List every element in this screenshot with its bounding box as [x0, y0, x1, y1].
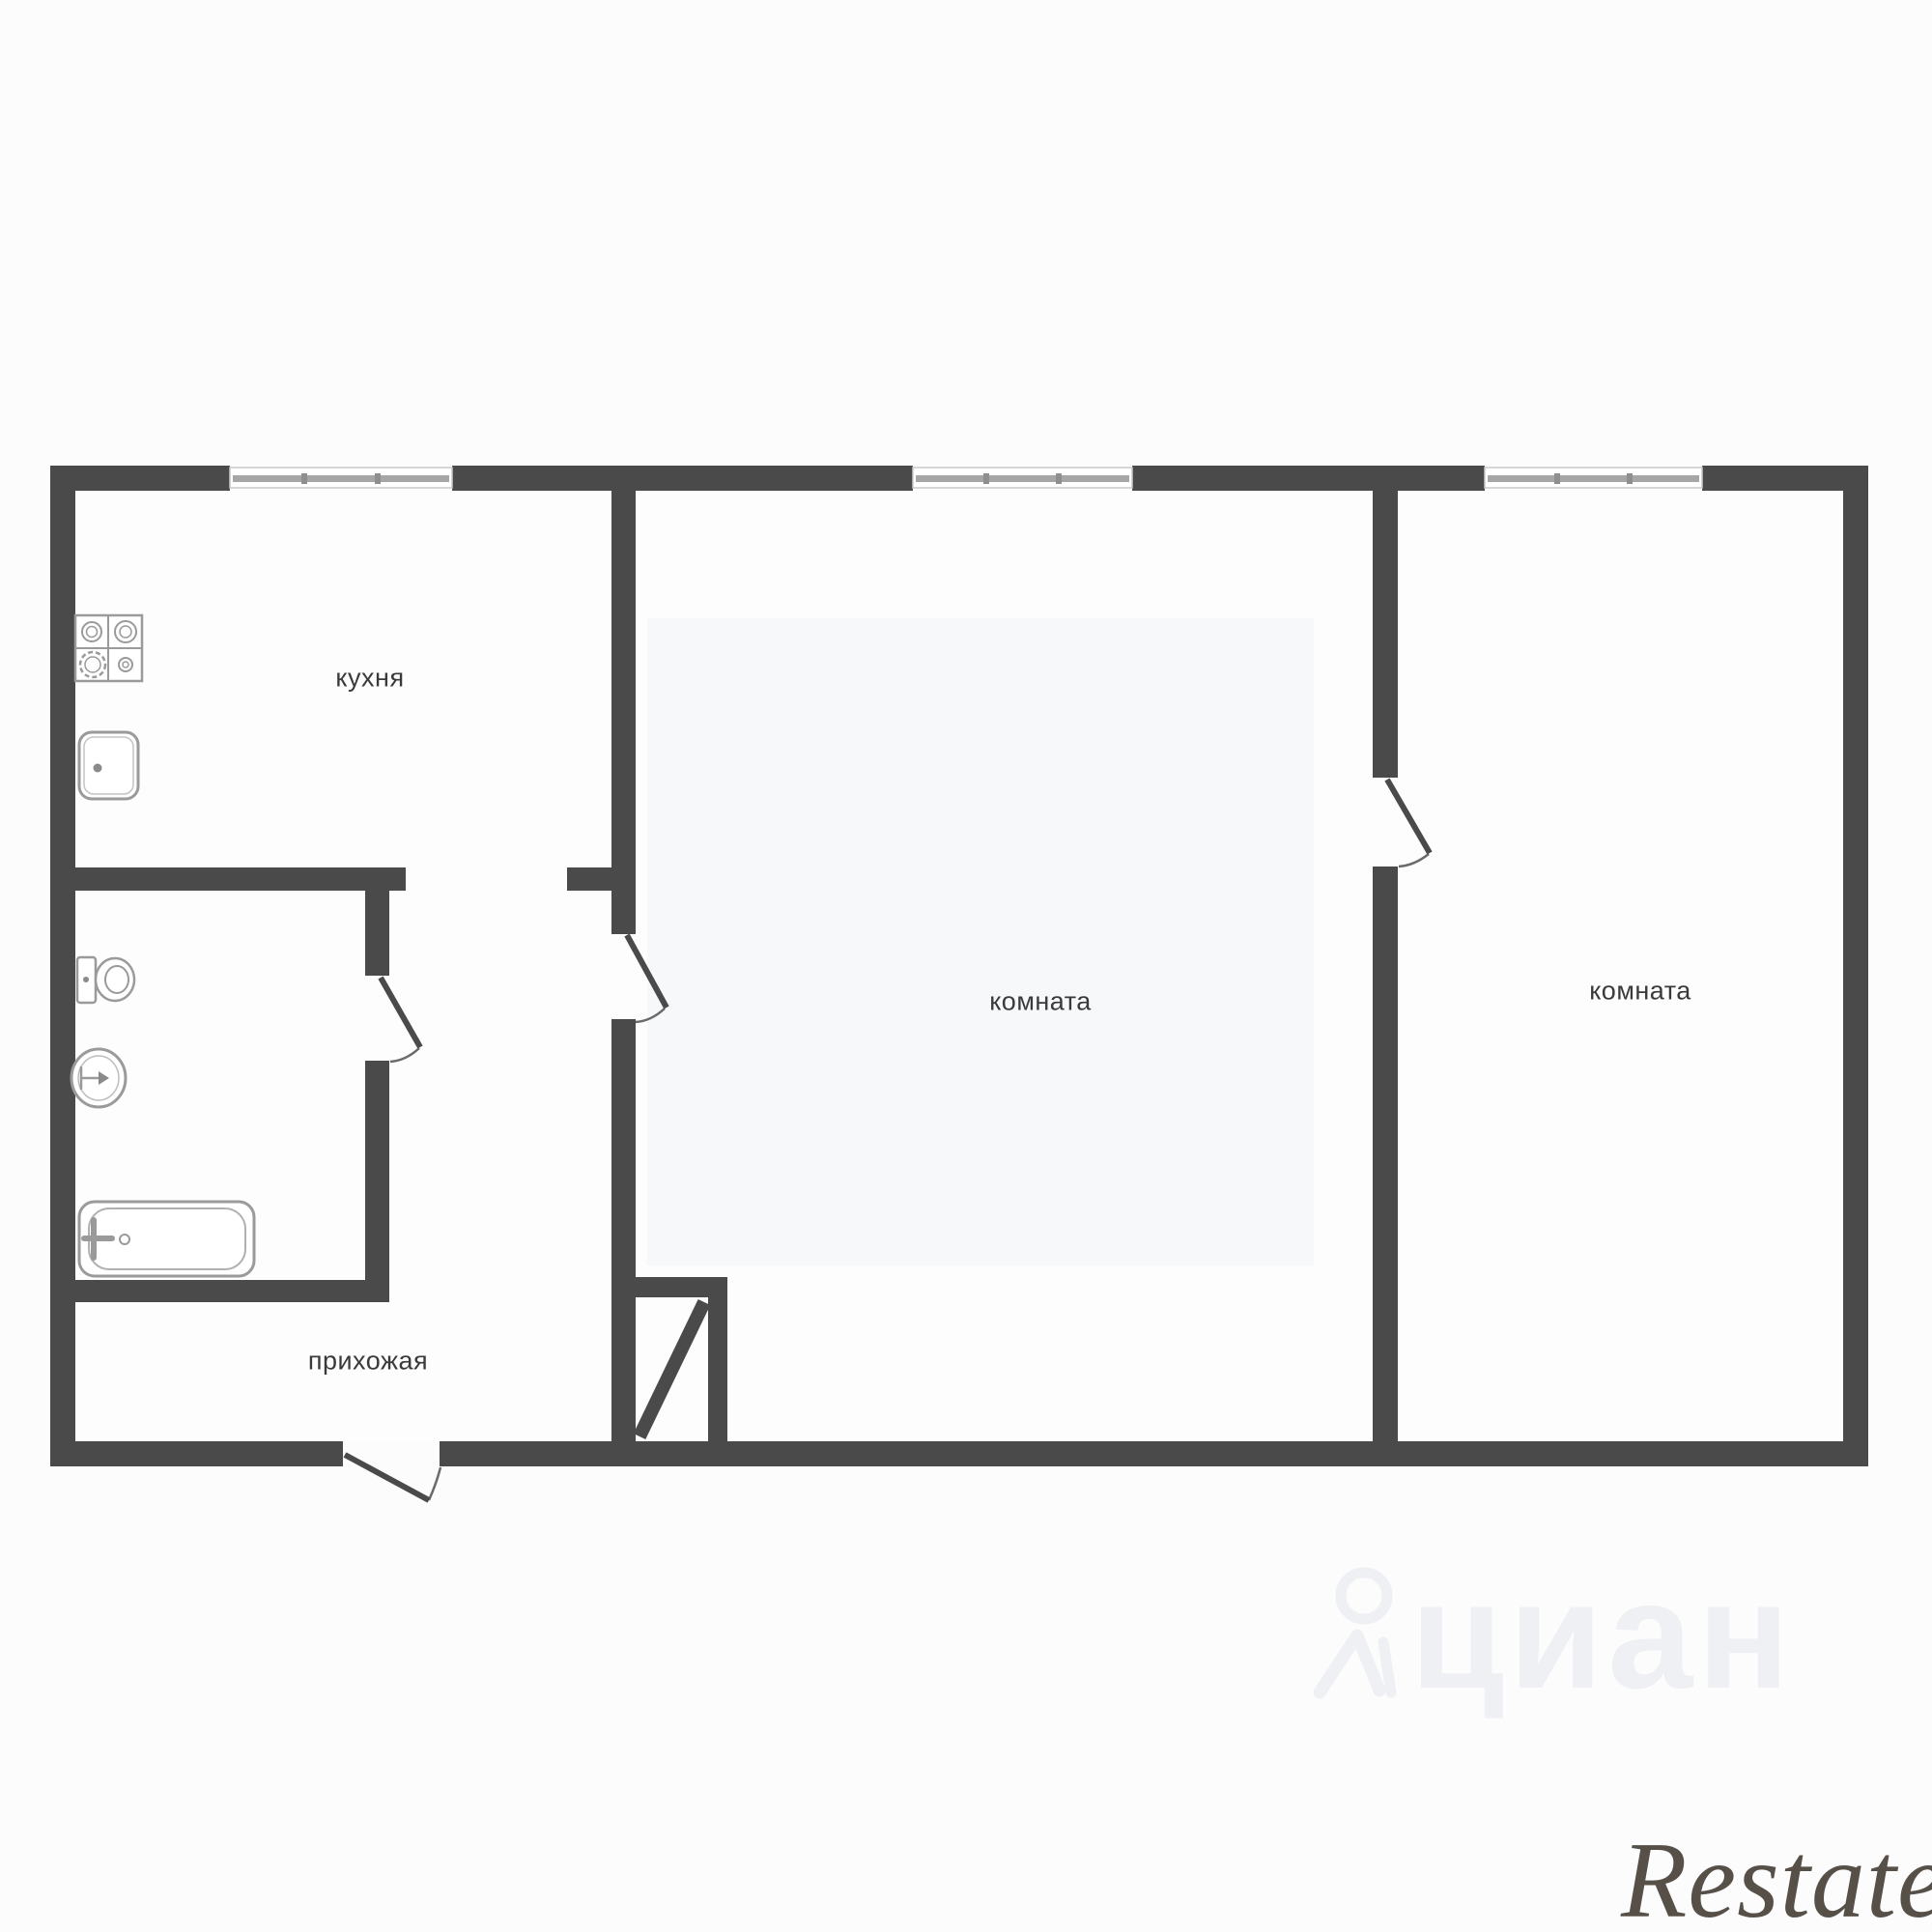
wall-top-segment [50, 466, 230, 491]
wall-bathroom-right [365, 891, 389, 976]
main-room-tint [647, 618, 1314, 1265]
room-label-kitchen: кухня [335, 664, 404, 694]
wall-bathroom-top [75, 867, 406, 891]
wall-rooms-divider [1373, 491, 1398, 778]
wall-right-exterior [1843, 466, 1868, 1466]
vent-shaft-wall-top [636, 1277, 727, 1297]
wall-top-segment [1132, 466, 1485, 491]
wall-hall-room [611, 1019, 636, 1441]
restate-watermark-text: Restate [1621, 1822, 1932, 1932]
wall-rooms-divider [1373, 867, 1398, 1441]
room-label-second-room: комната [1589, 977, 1691, 1007]
stove-icon [75, 615, 142, 681]
wall-bathroom-right [365, 1061, 389, 1302]
room-label-main-room: комната [989, 987, 1092, 1017]
wall-top-segment [452, 466, 913, 491]
kitchen-sink-icon [79, 732, 138, 799]
window-icon-second-room [1485, 468, 1702, 488]
window-icon-kitchen [230, 468, 452, 488]
room-label-hallway: прихожая [308, 1347, 428, 1377]
vent-shaft-wall-right [708, 1297, 727, 1441]
wall-bathroom-bottom [75, 1280, 389, 1302]
wall-bottom-segment [440, 1441, 1868, 1466]
wall-kitchen-room [611, 491, 636, 934]
bathtub-icon [79, 1202, 254, 1276]
wall-stub [567, 867, 611, 891]
wall-bottom-segment [50, 1441, 343, 1466]
floor-plan: кухня комната комната прихожая циан Rest… [0, 0, 1932, 1932]
washbasin-icon [71, 1049, 126, 1107]
wall-top-segment [1702, 466, 1868, 491]
toilet-icon [77, 957, 134, 1003]
cian-watermark-text: циан [1410, 1573, 1795, 1698]
wall-left-exterior [50, 466, 75, 1466]
window-icon-main-room [913, 468, 1132, 488]
